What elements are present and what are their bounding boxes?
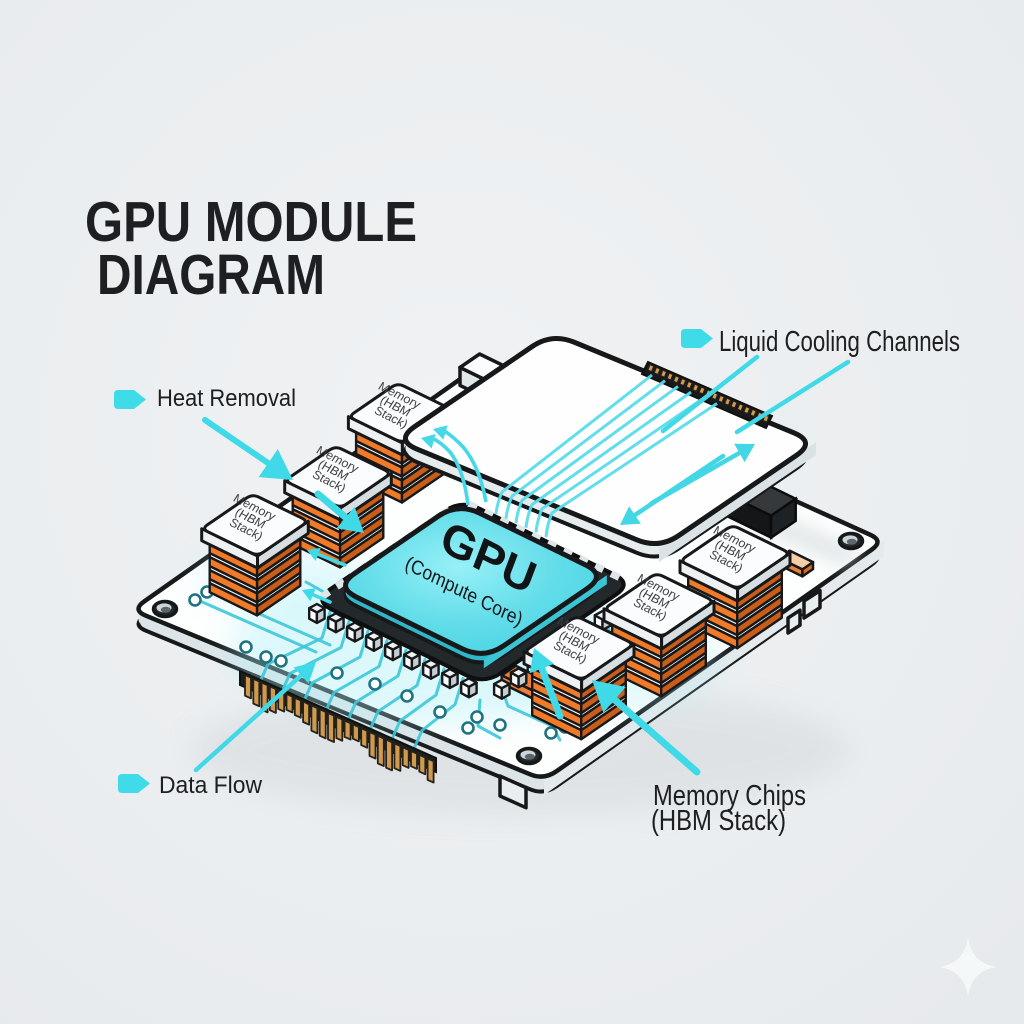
svg-text:(HBM Stack): (HBM Stack) <box>651 805 786 837</box>
svg-text:Liquid Cooling Channels: Liquid Cooling Channels <box>719 326 960 358</box>
svg-text:Data Flow: Data Flow <box>159 772 263 799</box>
svg-text:Heat Removal: Heat Removal <box>157 385 296 412</box>
svg-text:DIAGRAM: DIAGRAM <box>97 243 325 307</box>
